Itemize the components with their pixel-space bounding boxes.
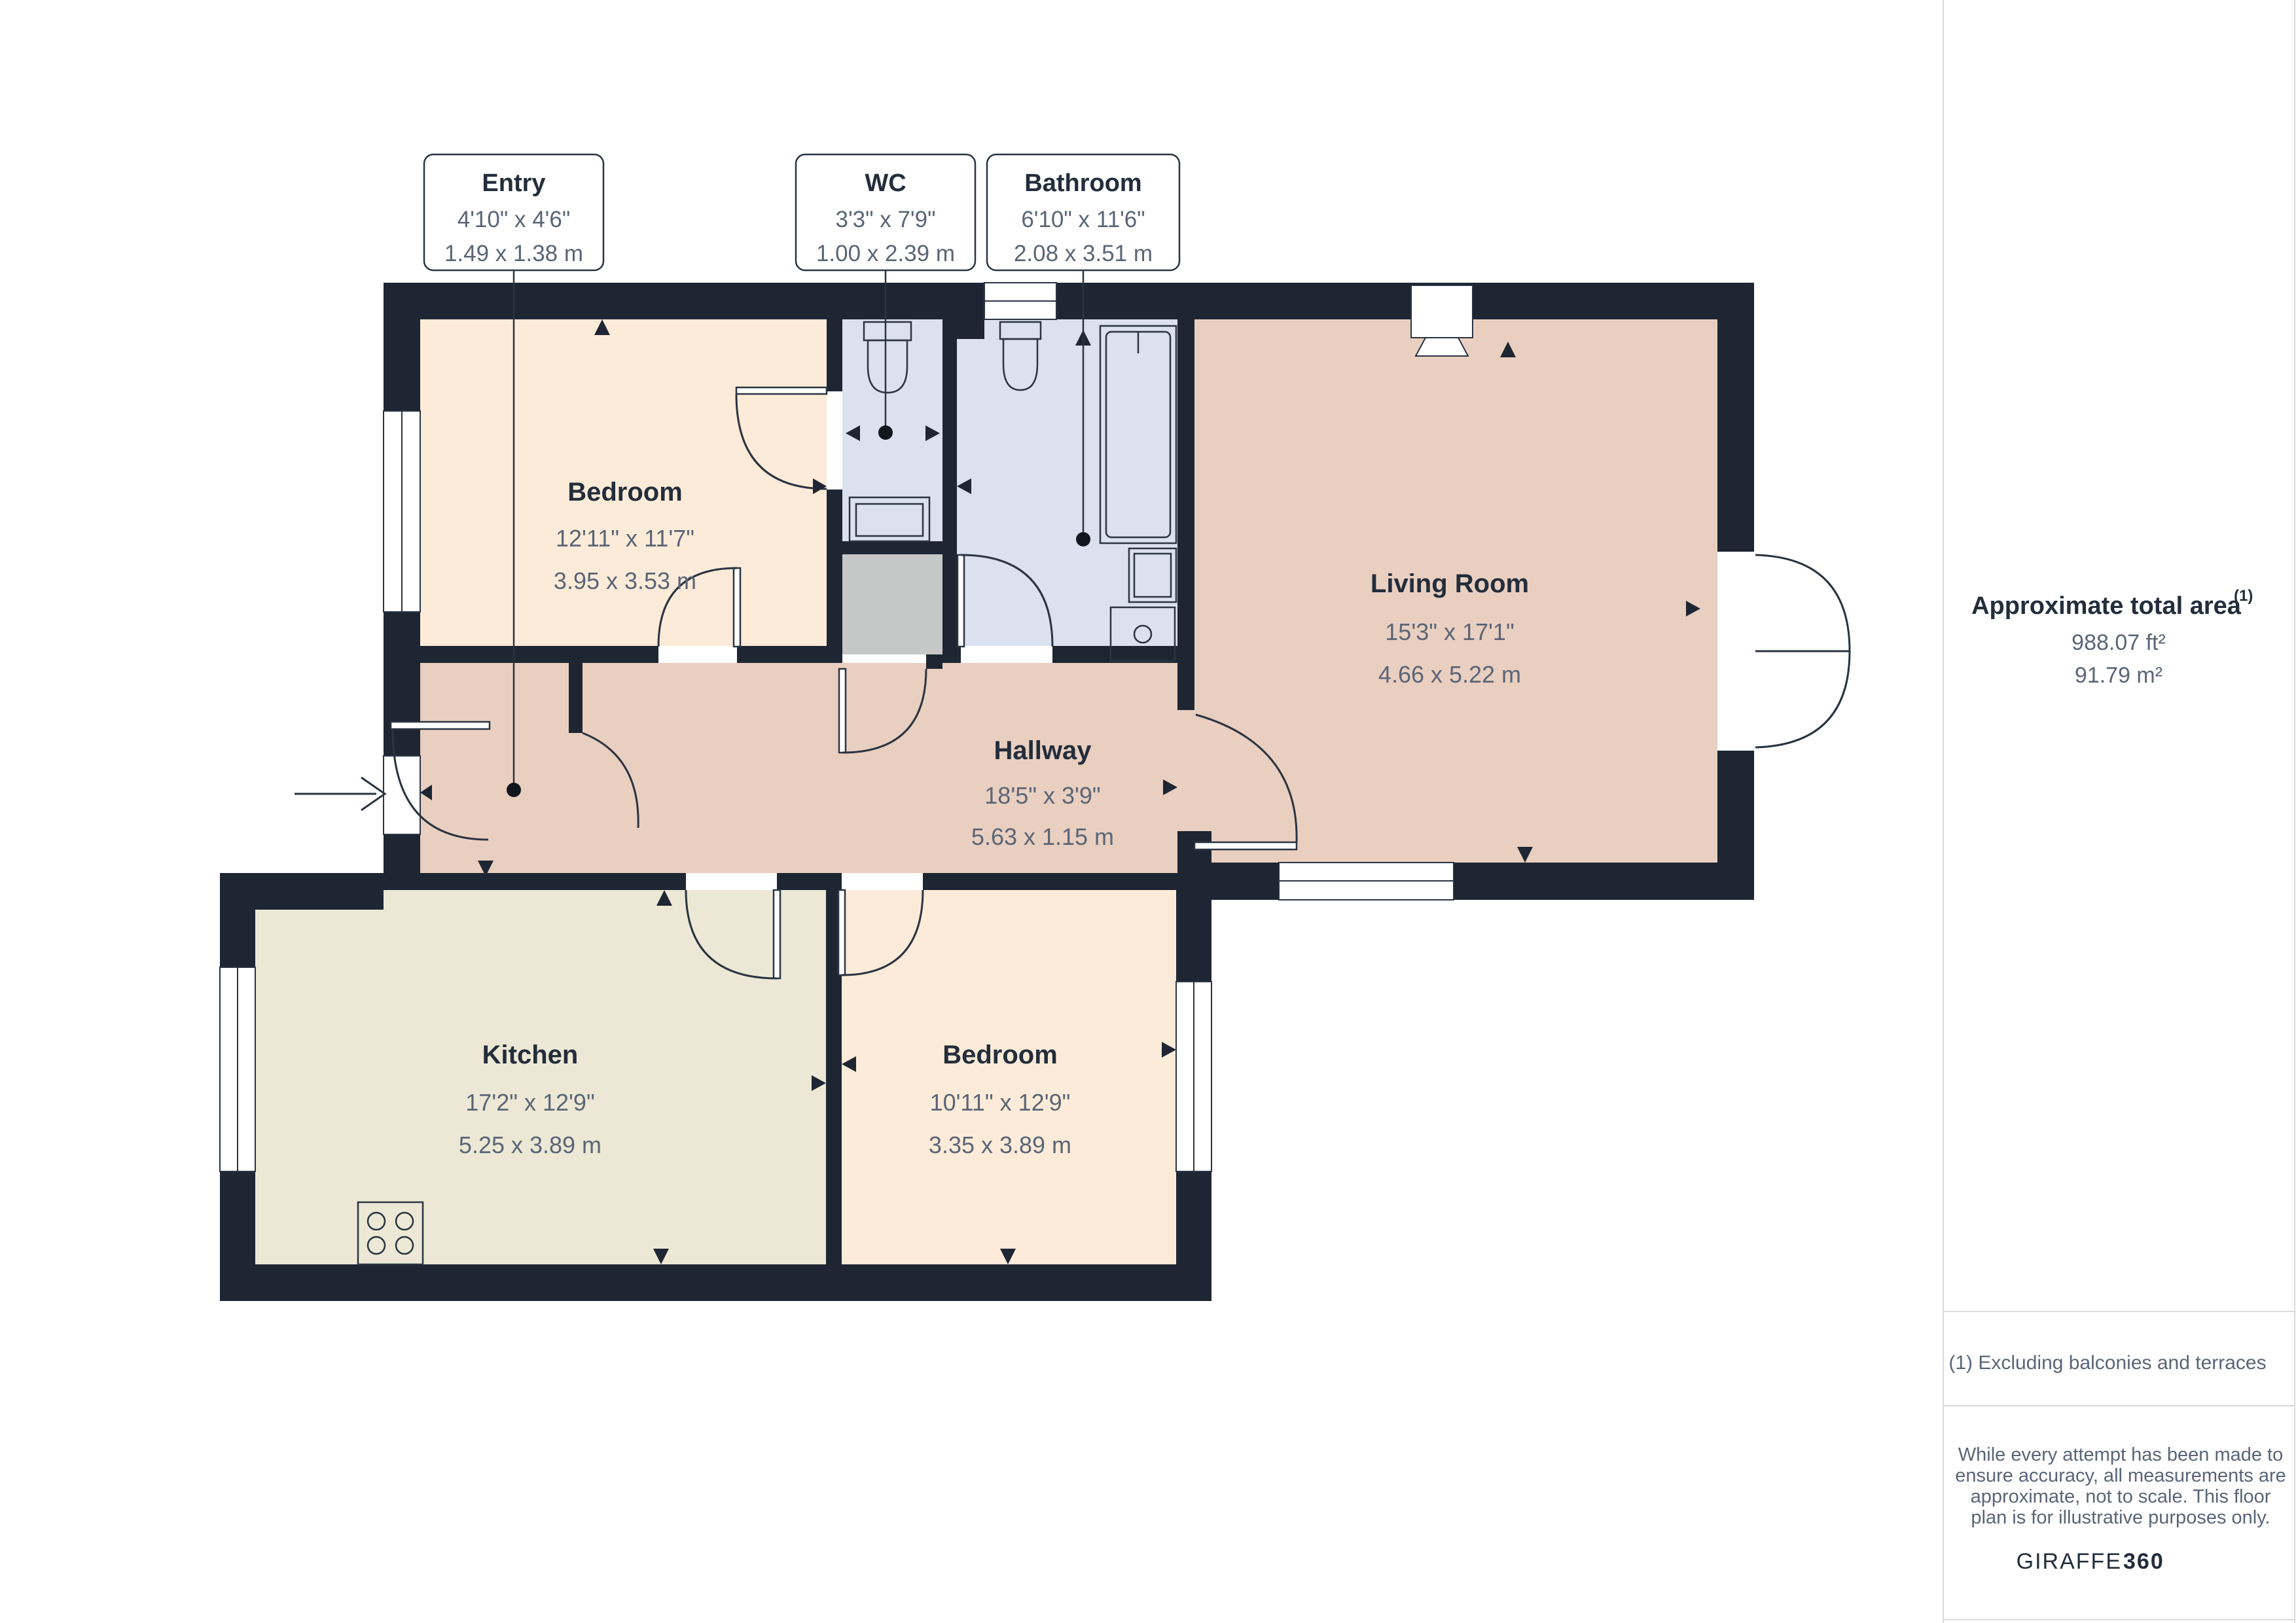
svg-text:ensure accuracy, all measureme: ensure accuracy, all measurements are: [1955, 1465, 2286, 1486]
svg-text:Bedroom: Bedroom: [942, 1041, 1058, 1069]
front-door-opening: [384, 756, 420, 834]
wall-hall-top: [737, 646, 842, 663]
wall-bathroom-living: [1177, 319, 1194, 710]
svg-text:15'3" x 17'1": 15'3" x 17'1": [1385, 618, 1514, 645]
callout-bathroom-dims-m: 2.08 x 3.51 m: [1014, 241, 1153, 266]
sidebar: Approximate total area (1) 988.07 ft² 91…: [1943, 0, 2295, 1623]
svg-text:10'11" x 12'9": 10'11" x 12'9": [930, 1089, 1071, 1116]
french-door-arc-top: [1755, 555, 1850, 651]
disclaimer: While every attempt has been made to ens…: [1955, 1444, 2286, 1528]
callout-bathroom-dims-ft: 6'10" x 11'6": [1021, 207, 1145, 232]
svg-text:plan is for illustrative purpo: plan is for illustrative purposes only.: [1971, 1507, 2270, 1528]
svg-text:4.66 x 5.22 m: 4.66 x 5.22 m: [1378, 661, 1521, 688]
kitchen-door-leaf: [774, 890, 780, 978]
total-area-ft: 988.07 ft²: [2072, 630, 2166, 655]
entry-anchor-dot: [507, 783, 521, 797]
giraffe360-logo: GIRAFFE 360: [2017, 1549, 2164, 1574]
window-living-bottom: [1279, 863, 1454, 900]
svg-text:18'5" x 3'9": 18'5" x 3'9": [984, 782, 1100, 809]
label-living-room: Living Room 15'3" x 17'1" 4.66 x 5.22 m: [1371, 569, 1529, 688]
callout-bathroom-name: Bathroom: [1024, 169, 1141, 197]
wc-anchor-dot: [878, 425, 893, 440]
svg-text:5.25 x 3.89 m: 5.25 x 3.89 m: [459, 1132, 601, 1158]
wall-top: [384, 283, 1754, 319]
svg-text:3.35 x 3.89 m: 3.35 x 3.89 m: [929, 1132, 1071, 1158]
svg-text:approximate, not to scale. Thi: approximate, not to scale. This floor: [1971, 1486, 2271, 1507]
hallway-living-doorway: [1177, 710, 1194, 831]
callout-wc-name: WC: [865, 169, 906, 197]
svg-text:Bedroom: Bedroom: [567, 478, 683, 507]
floorplan-page: Entry 4'10" x 4'6" 1.49 x 1.38 m WC 3'3"…: [0, 0, 2296, 1623]
french-door-opening: [1717, 552, 1754, 751]
total-area-block: Approximate total area (1) 988.07 ft² 91…: [1971, 587, 2253, 688]
svg-text:Kitchen: Kitchen: [482, 1041, 579, 1069]
brand-suffix: 360: [2123, 1549, 2164, 1574]
callout-entry-dims-m: 1.49 x 1.38 m: [444, 241, 583, 266]
svg-text:5.63 x 1.15 m: 5.63 x 1.15 m: [971, 823, 1114, 850]
wall-vestibule-bottom: [384, 873, 613, 890]
window-bathroom-top: [984, 283, 1056, 319]
kitchen-floor: [255, 890, 826, 1264]
callout-entry-name: Entry: [482, 169, 545, 197]
callout-entry: Entry 4'10" x 4'6" 1.49 x 1.38 m: [424, 154, 603, 270]
wall-vestibule-stub: [569, 663, 583, 733]
wall-wc-bottom: [842, 541, 942, 554]
callout-wc-dims-m: 1.00 x 2.39 m: [816, 241, 955, 266]
vestibule-door-leaf: [391, 722, 490, 729]
svg-text:Hallway: Hallway: [994, 736, 1092, 765]
svg-text:17'2" x 12'9": 17'2" x 12'9": [465, 1089, 594, 1116]
callout-wc-dims-ft: 3'3" x 7'9": [835, 207, 935, 232]
window-kitchen-left: [220, 967, 255, 1171]
bedroom1-wc-door-leaf: [736, 387, 827, 394]
footnote: (1) Excluding balconies and terraces: [1948, 1352, 2266, 1374]
window-bedroom1-left: [384, 411, 420, 612]
wall-hall-bottom: [923, 873, 1177, 890]
floorplan-canvas: Entry 4'10" x 4'6" 1.49 x 1.38 m WC 3'3"…: [0, 0, 2296, 1623]
svg-text:12'11" x 11'7": 12'11" x 11'7": [556, 525, 694, 552]
total-area-title: Approximate total area: [1971, 592, 2242, 620]
wall-bedroom1-wc: [827, 490, 842, 646]
closet-floor: [842, 554, 942, 654]
french-door-arc-bottom: [1755, 651, 1850, 747]
label-bedroom-2: Bedroom 10'11" x 12'9" 3.35 x 3.89 m: [929, 1041, 1071, 1158]
entry-arrow-icon: [295, 777, 385, 810]
svg-text:3.95 x 3.53 m: 3.95 x 3.53 m: [554, 567, 696, 594]
label-bedroom-1: Bedroom 12'11" x 11'7" 3.95 x 3.53 m: [554, 478, 696, 594]
svg-text:While every attempt has been m: While every attempt has been made to: [1958, 1444, 2283, 1465]
bedroom1-door-leaf: [734, 568, 740, 647]
closet-door-leaf: [839, 669, 846, 753]
svg-text:Living Room: Living Room: [1371, 569, 1529, 598]
living-door-leaf: [1194, 842, 1297, 849]
bathroom-anchor-dot: [1076, 532, 1090, 546]
window-bedroom2-right: [1176, 982, 1211, 1171]
bathroom-door-leaf: [958, 555, 964, 647]
callout-wc: WC 3'3" x 7'9" 1.00 x 2.39 m: [796, 154, 975, 270]
total-area-superscript: (1): [2234, 587, 2253, 605]
wall-kitchen-topleft: [220, 873, 384, 910]
total-area-m: 91.79 m²: [2075, 663, 2162, 688]
bedroom-2-floor: [842, 890, 1176, 1264]
wall-bottom: [220, 1264, 1211, 1301]
callout-bathroom: Bathroom 6'10" x 11'6" 2.08 x 3.51 m: [987, 154, 1179, 270]
bedroom2-door-leaf: [838, 890, 845, 975]
wall-wc-bathroom: [942, 319, 957, 646]
brand-name: GIRAFFE: [2017, 1549, 2122, 1574]
callout-entry-dims-ft: 4'10" x 4'6": [457, 207, 571, 232]
callout-boxes: Entry 4'10" x 4'6" 1.49 x 1.38 m WC 3'3"…: [424, 154, 1179, 270]
